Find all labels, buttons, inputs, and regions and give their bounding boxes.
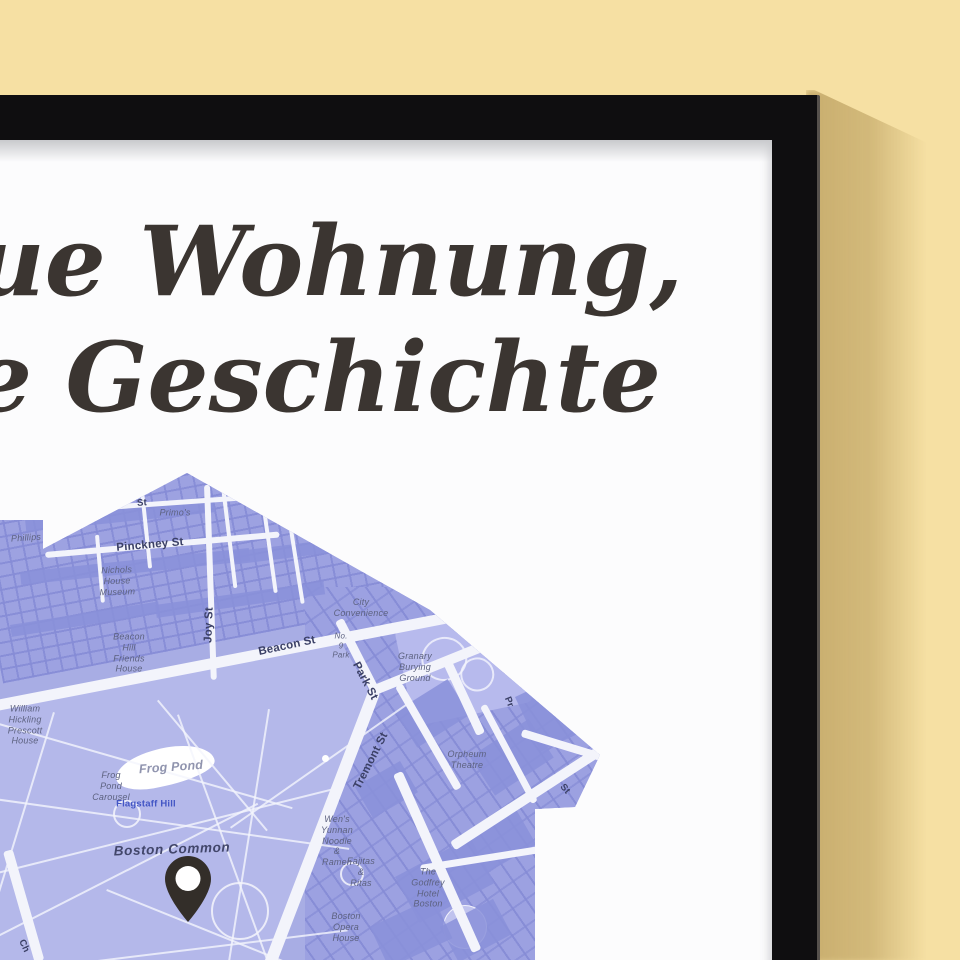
map-label: Fajitas & Ritas — [347, 856, 375, 888]
map-label: No. 9 Park — [332, 632, 349, 661]
map-label: St — [137, 497, 148, 509]
map-poster: ue Wohnung, e Geschichte — [0, 140, 772, 960]
map-label: William Hickling Prescott House — [8, 703, 43, 746]
location-pin-icon — [165, 856, 211, 922]
map-label: Phillips — [11, 532, 42, 545]
map-label: Joy St — [202, 607, 215, 643]
plaza-circle — [211, 882, 269, 940]
poster-title-line2: e Geschichte — [0, 330, 661, 426]
map-label: Frog Pond Carousel — [92, 770, 130, 802]
house-shaped-map: StPrimo'sPinckney StPhillipsNichols Hous… — [0, 457, 665, 960]
map-label: Granary Burying Ground — [398, 651, 432, 683]
map-label: The Godfrey Hotel Boston — [411, 866, 444, 909]
map-label: Orpheum Theatre — [448, 749, 487, 771]
frame-inner-shadow — [0, 140, 772, 162]
map-label: Flagstaff Hill — [116, 799, 176, 810]
poster-title-line1: ue Wohnung, — [0, 214, 683, 310]
map-label: Nichols House Museum — [99, 564, 136, 598]
picture-frame: ue Wohnung, e Geschichte — [0, 95, 820, 960]
map-dot — [322, 755, 329, 762]
map-label: City Convenience — [334, 597, 389, 619]
photo-scene: ue Wohnung, e Geschichte — [0, 0, 960, 960]
map-label: Primo's — [159, 508, 190, 519]
map-label: Boston Opera House — [331, 911, 360, 943]
frame-cast-shadow — [806, 90, 926, 960]
map-label: Beacon Hill Friends House — [113, 631, 145, 674]
